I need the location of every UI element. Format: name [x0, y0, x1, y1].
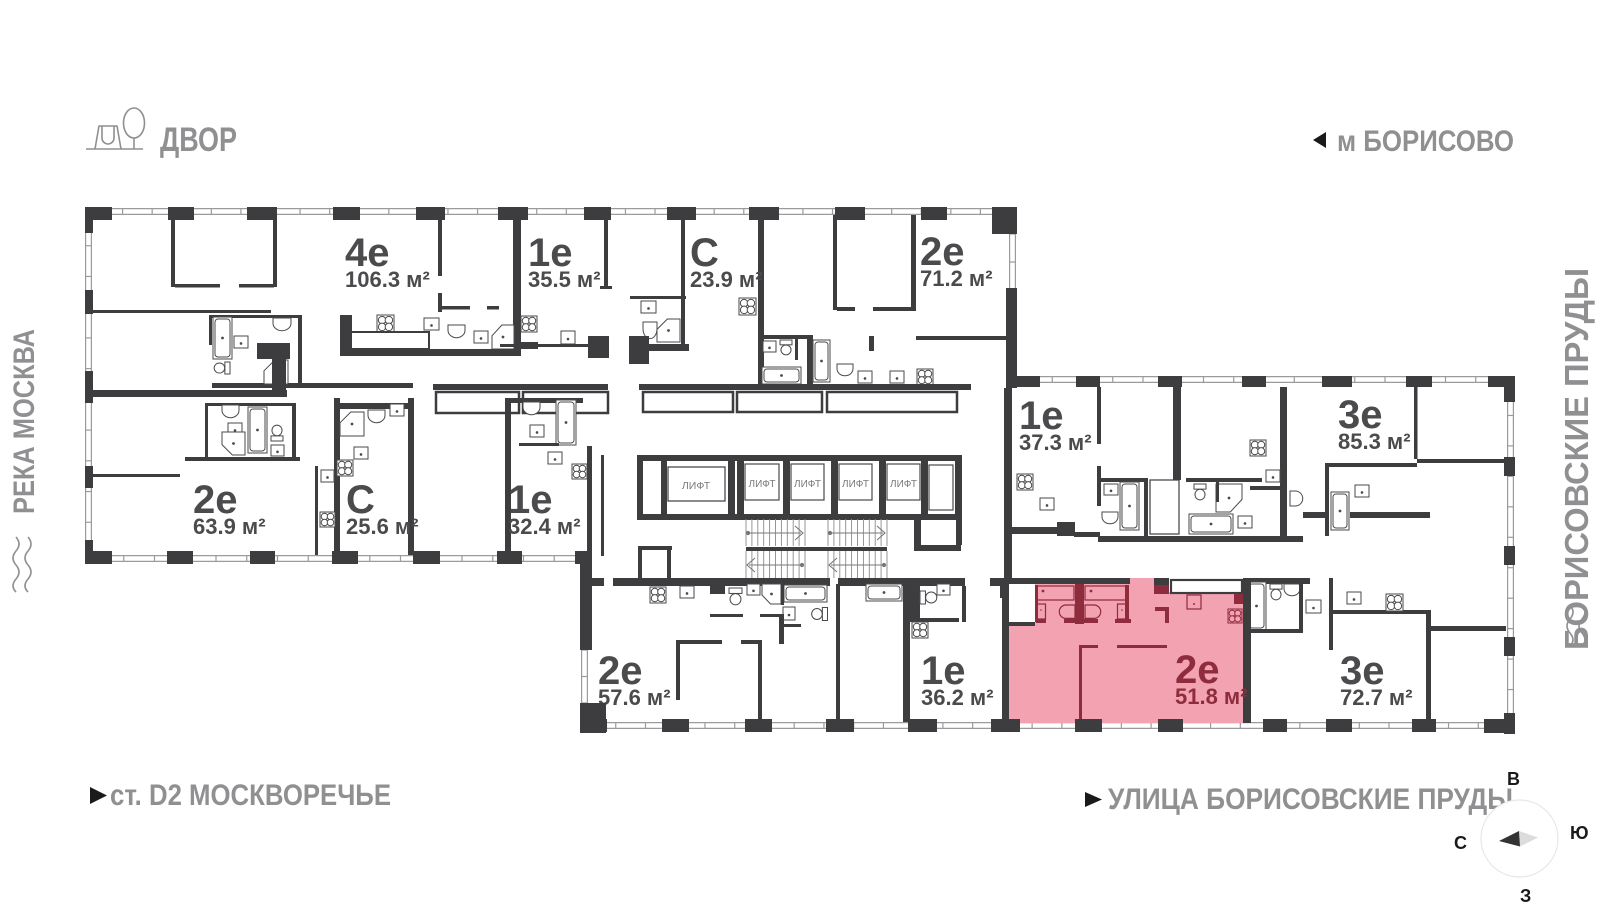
- svg-text:Ю: Ю: [1570, 823, 1589, 843]
- svg-text:72.7 м²: 72.7 м²: [1340, 685, 1413, 710]
- svg-text:РЕКА МОСКВА: РЕКА МОСКВА: [8, 329, 41, 514]
- svg-text:ДВОР: ДВОР: [160, 121, 237, 159]
- svg-text:37.3 м²: 37.3 м²: [1019, 430, 1092, 455]
- svg-text:51.8 м²: 51.8 м²: [1175, 684, 1248, 709]
- svg-text:ЛИФТ: ЛИФТ: [749, 479, 776, 490]
- svg-text:23.9 м²: 23.9 м²: [690, 267, 763, 292]
- svg-text:35.5 м²: 35.5 м²: [528, 267, 601, 292]
- svg-text:В: В: [1507, 769, 1520, 789]
- svg-text:ст. D2 МОСКВОРЕЧЬЕ: ст. D2 МОСКВОРЕЧЬЕ: [110, 779, 391, 812]
- svg-text:С: С: [1454, 833, 1467, 853]
- svg-text:106.3 м²: 106.3 м²: [345, 267, 430, 292]
- svg-text:ЛИФТ: ЛИФТ: [794, 479, 821, 490]
- svg-text:БОРИСОВСКИЕ ПРУДЫ: БОРИСОВСКИЕ ПРУДЫ: [1558, 268, 1595, 650]
- svg-text:м БОРИСОВО: м БОРИСОВО: [1337, 125, 1514, 158]
- svg-text:71.2 м²: 71.2 м²: [920, 266, 993, 291]
- svg-text:ЛИФТ: ЛИФТ: [890, 479, 917, 490]
- svg-text:63.9 м²: 63.9 м²: [193, 514, 266, 539]
- svg-text:57.6 м²: 57.6 м²: [598, 685, 671, 710]
- svg-text:ЛИФТ: ЛИФТ: [842, 479, 869, 490]
- svg-text:УЛИЦА БОРИСОВСКИЕ ПРУДЫ: УЛИЦА БОРИСОВСКИЕ ПРУДЫ: [1108, 783, 1513, 816]
- svg-text:25.6 м²: 25.6 м²: [346, 514, 419, 539]
- svg-text:ЛИФТ: ЛИФТ: [682, 480, 711, 492]
- svg-text:85.3 м²: 85.3 м²: [1338, 429, 1411, 454]
- svg-text:З: З: [1520, 886, 1531, 906]
- svg-text:32.4 м²: 32.4 м²: [508, 514, 581, 539]
- svg-text:36.2 м²: 36.2 м²: [921, 685, 994, 710]
